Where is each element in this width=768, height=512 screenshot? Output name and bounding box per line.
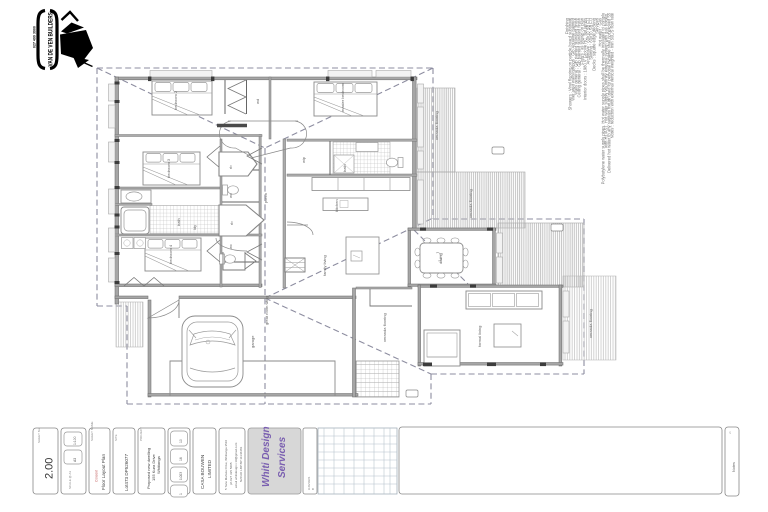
- svg-text:bedroom 3: bedroom 3: [166, 158, 171, 178]
- svg-text:B: B: [311, 488, 315, 490]
- svg-text:ldy: ldy: [192, 225, 197, 230]
- svg-text:A3: A3: [73, 458, 77, 462]
- svg-text:dining: dining: [438, 253, 443, 264]
- svg-text:veranda flooring: veranda flooring: [382, 313, 387, 342]
- svg-text:veranda flooring: veranda flooring: [434, 111, 439, 140]
- svg-text:Services: Services: [277, 436, 288, 478]
- svg-text:Notes: Notes: [732, 462, 736, 472]
- svg-text:Consent: Consent: [95, 470, 99, 482]
- svg-text:veranda flooring: veranda flooring: [468, 189, 473, 218]
- svg-text:Floor Layout Plan: Floor Layout Plan: [101, 454, 106, 490]
- svg-text:bedroom 2: bedroom 2: [173, 90, 178, 110]
- svg-text:CASA BOUWEN: CASA BOUWEN: [200, 455, 205, 489]
- svg-text:PROJECT: PROJECT: [139, 427, 143, 441]
- svg-text:email whitidesign.t.19@gmail.c: email whitidesign.t.19@gmail.com: [234, 442, 238, 488]
- svg-text:VAN DE VEN BUILDERS: VAN DE VEN BUILDERS: [48, 12, 55, 66]
- svg-text:A 26/10/21: A 26/10/21: [307, 476, 311, 490]
- svg-text:wc: wc: [228, 244, 233, 249]
- svg-text:wd: wd: [255, 99, 260, 104]
- svg-text:NZCAD LBP BP 11146481: NZCAD LBP BP 11146481: [239, 446, 243, 482]
- svg-text:veranda flooring: veranda flooring: [588, 309, 593, 338]
- svg-text:Whiti Design: Whiti Design: [261, 426, 272, 487]
- svg-text:kitchen: kitchen: [334, 199, 339, 212]
- svg-text:2.00: 2.00: [44, 458, 56, 479]
- svg-text:family living: family living: [322, 255, 327, 276]
- svg-text:16: 16: [179, 457, 183, 461]
- svg-text:Whitianga: Whitianga: [156, 455, 161, 474]
- svg-text:SCALE @ A3: SCALE @ A3: [68, 471, 72, 489]
- svg-text:1: 1: [179, 493, 183, 495]
- svg-text:formal living: formal living: [477, 326, 482, 347]
- svg-text:10: 10: [179, 439, 183, 443]
- svg-text:1:100: 1:100: [73, 436, 77, 445]
- svg-text:garage: garage: [250, 335, 255, 348]
- svg-text:ph 027 335 5605: ph 027 335 5605: [229, 462, 233, 485]
- svg-text:great room wing: great room wing: [264, 296, 269, 325]
- svg-text:SITE: SITE: [114, 434, 118, 441]
- svg-text:bath: bath: [176, 218, 181, 226]
- svg-text:SHEET NAME: SHEET NAME: [90, 422, 94, 441]
- svg-text:master bedroom: master bedroom: [340, 82, 345, 112]
- svg-text:LIMITED: LIMITED: [207, 459, 212, 478]
- svg-text:027 499 3900: 027 499 3900: [33, 26, 37, 48]
- svg-text:SHEET No: SHEET No: [37, 428, 41, 443]
- svg-text:porch: porch: [263, 193, 268, 203]
- svg-text:5 Tane Mahuta Drive, Whitianga: 5 Tane Mahuta Drive, Whitianga 3510: [224, 440, 228, 490]
- svg-text:bath: bath: [342, 164, 347, 172]
- svg-text:bedroom 4: bedroom 4: [168, 244, 173, 264]
- svg-text:wip: wip: [301, 156, 306, 163]
- svg-text:wc: wc: [228, 193, 233, 198]
- svg-text:Lot473 DP526077: Lot473 DP526077: [124, 454, 129, 491]
- svg-text:1.003: 1.003: [179, 472, 183, 480]
- svg-text:Notes : reduction with externa: Notes : reduction with external vertical…: [610, 12, 615, 138]
